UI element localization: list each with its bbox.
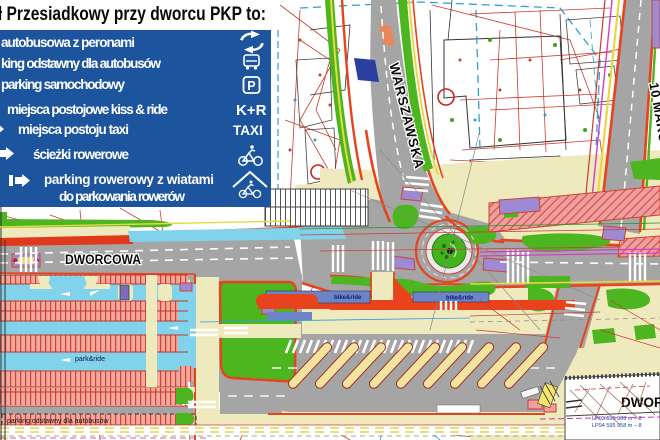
svg-text:parking rowerowy z wiatami: parking rowerowy z wiatami — [44, 172, 214, 187]
svg-text:ścieżki rowerowe: ścieżki rowerowe — [33, 147, 129, 162]
svg-text:parking odstawny dla autobusów: parking odstawny dla autobusów — [7, 418, 110, 425]
svg-text:bike&ride: bike&ride — [446, 296, 474, 302]
svg-text:miejsca postoju taxi: miejsca postoju taxi — [18, 122, 129, 137]
svg-text:K+R: K+R — [236, 102, 267, 119]
svg-text:P: P — [247, 79, 255, 93]
svg-text:park&ride: park&ride — [75, 356, 105, 363]
svg-text:king odstawny dla autobusów: king odstawny dla autobusów — [1, 56, 161, 71]
svg-text:DWORCOWA: DWORCOWA — [65, 252, 141, 267]
svg-text:LP94 595 958 m – 8: LP94 595 958 m – 8 — [592, 423, 642, 429]
svg-text:TAXI: TAXI — [233, 123, 263, 138]
svg-text:Węzeł Przesiadkowy przy dworcu: Węzeł Przesiadkowy przy dworcu PKP to: — [0, 3, 266, 25]
svg-text:bike&ride: bike&ride — [334, 295, 362, 301]
svg-text:miejsca postojowe kiss & ride: miejsca postojowe kiss & ride — [7, 102, 168, 117]
svg-text:do parkowania rowerów: do parkowania rowerów — [59, 189, 185, 204]
svg-text:autobusowa z peronami: autobusowa z peronami — [1, 35, 135, 50]
svg-text:parking samochodowy: parking samochodowy — [1, 77, 125, 92]
